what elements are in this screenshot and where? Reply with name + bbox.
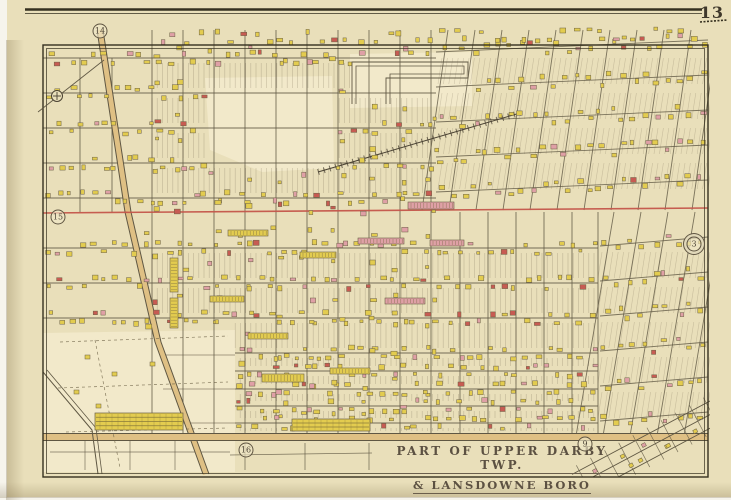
building bbox=[361, 211, 367, 216]
building bbox=[377, 320, 381, 324]
building bbox=[668, 115, 673, 119]
building bbox=[372, 104, 377, 109]
building bbox=[344, 321, 348, 326]
building bbox=[433, 417, 438, 421]
building bbox=[367, 392, 373, 395]
plate-ref-marker: 9 bbox=[578, 437, 593, 452]
building bbox=[179, 96, 183, 101]
building bbox=[547, 38, 552, 42]
building bbox=[339, 355, 345, 358]
building bbox=[534, 322, 540, 325]
building bbox=[565, 189, 570, 193]
building bbox=[556, 373, 559, 378]
building bbox=[565, 313, 569, 317]
building bbox=[549, 313, 552, 317]
building bbox=[273, 410, 279, 413]
building bbox=[136, 52, 141, 57]
building bbox=[278, 181, 281, 184]
building bbox=[54, 62, 60, 66]
building bbox=[340, 91, 346, 94]
building bbox=[480, 418, 486, 422]
building bbox=[678, 381, 684, 386]
building bbox=[678, 139, 683, 144]
building bbox=[677, 337, 681, 340]
building bbox=[246, 203, 252, 208]
building bbox=[639, 387, 644, 390]
building bbox=[237, 406, 242, 410]
building bbox=[536, 401, 539, 405]
building bbox=[57, 121, 61, 126]
building bbox=[154, 207, 159, 212]
building bbox=[237, 384, 243, 389]
building bbox=[487, 79, 491, 83]
building bbox=[123, 132, 129, 136]
building bbox=[371, 234, 377, 237]
building bbox=[532, 188, 536, 192]
building bbox=[577, 356, 583, 359]
building bbox=[104, 167, 109, 170]
building bbox=[640, 37, 644, 41]
building bbox=[370, 349, 375, 353]
building bbox=[534, 364, 538, 368]
building bbox=[509, 193, 514, 196]
building bbox=[576, 321, 582, 325]
building bbox=[476, 121, 479, 125]
building bbox=[181, 122, 187, 126]
building bbox=[549, 347, 553, 350]
building bbox=[394, 293, 398, 297]
building bbox=[590, 313, 595, 317]
building bbox=[537, 276, 541, 281]
building bbox=[154, 55, 160, 58]
building bbox=[613, 38, 619, 41]
building bbox=[511, 374, 516, 377]
building bbox=[144, 279, 149, 282]
building bbox=[331, 279, 336, 282]
building bbox=[128, 155, 132, 160]
building bbox=[162, 96, 167, 101]
building bbox=[310, 298, 315, 303]
building bbox=[643, 183, 648, 188]
open-block bbox=[350, 52, 472, 108]
building bbox=[557, 348, 562, 351]
building bbox=[548, 409, 552, 414]
building bbox=[174, 209, 180, 214]
building bbox=[643, 342, 647, 346]
building bbox=[467, 356, 473, 360]
building bbox=[436, 400, 439, 405]
building bbox=[402, 284, 406, 288]
building bbox=[115, 199, 120, 204]
building bbox=[440, 115, 443, 119]
building bbox=[355, 278, 359, 282]
building bbox=[438, 423, 441, 428]
building bbox=[421, 279, 426, 282]
building bbox=[678, 34, 683, 38]
building bbox=[622, 177, 625, 181]
building bbox=[591, 390, 596, 394]
building bbox=[74, 390, 79, 394]
building bbox=[665, 148, 669, 152]
building bbox=[394, 372, 398, 377]
building bbox=[270, 277, 274, 281]
building bbox=[663, 419, 666, 422]
building bbox=[80, 243, 86, 247]
building bbox=[534, 113, 538, 117]
building bbox=[215, 61, 221, 66]
building bbox=[69, 166, 74, 169]
building bbox=[463, 36, 467, 41]
building bbox=[268, 252, 272, 255]
building bbox=[389, 32, 394, 35]
building bbox=[155, 241, 160, 245]
building bbox=[301, 52, 307, 57]
building bbox=[509, 112, 514, 115]
map-canvas bbox=[0, 0, 731, 500]
building bbox=[370, 260, 375, 265]
building bbox=[60, 320, 65, 324]
building bbox=[593, 242, 597, 245]
building bbox=[516, 148, 520, 152]
building bbox=[404, 319, 408, 324]
building bbox=[332, 319, 336, 322]
building bbox=[601, 83, 604, 87]
building bbox=[535, 39, 540, 43]
building bbox=[402, 394, 407, 397]
building bbox=[111, 61, 114, 65]
building bbox=[491, 400, 494, 405]
building bbox=[687, 140, 692, 144]
building bbox=[369, 316, 374, 320]
building bbox=[257, 372, 261, 377]
building bbox=[489, 347, 493, 350]
building bbox=[567, 275, 572, 280]
building bbox=[383, 409, 387, 414]
building bbox=[351, 129, 357, 133]
building bbox=[463, 194, 469, 198]
building bbox=[479, 31, 483, 34]
building bbox=[392, 377, 397, 380]
building bbox=[353, 165, 357, 169]
building bbox=[540, 74, 544, 79]
building bbox=[95, 122, 99, 125]
building bbox=[687, 76, 693, 80]
building bbox=[426, 51, 429, 55]
building bbox=[57, 278, 62, 281]
building bbox=[172, 201, 177, 204]
building bbox=[237, 425, 242, 428]
building bbox=[153, 310, 159, 314]
building bbox=[85, 355, 90, 359]
building bbox=[625, 378, 630, 383]
building bbox=[589, 278, 594, 282]
building bbox=[228, 251, 231, 256]
building bbox=[629, 280, 633, 285]
building bbox=[150, 362, 155, 366]
building bbox=[292, 408, 296, 412]
building bbox=[278, 202, 282, 207]
building bbox=[149, 158, 155, 162]
building bbox=[314, 193, 320, 197]
building bbox=[437, 381, 443, 385]
building bbox=[540, 145, 546, 149]
building bbox=[526, 366, 529, 369]
building bbox=[486, 114, 490, 119]
building bbox=[208, 261, 212, 265]
building bbox=[328, 391, 333, 396]
building bbox=[370, 147, 376, 152]
building bbox=[569, 416, 575, 420]
building bbox=[135, 88, 140, 91]
building bbox=[477, 318, 480, 323]
building bbox=[646, 141, 652, 145]
building bbox=[577, 373, 582, 377]
building bbox=[277, 38, 283, 42]
building bbox=[597, 109, 600, 113]
rowhouse-strip bbox=[170, 258, 178, 292]
building bbox=[372, 374, 377, 377]
building bbox=[215, 285, 218, 288]
building bbox=[274, 357, 277, 362]
building bbox=[326, 201, 329, 206]
building bbox=[328, 399, 334, 404]
building bbox=[359, 51, 365, 56]
building bbox=[605, 387, 611, 391]
building bbox=[238, 242, 242, 245]
building bbox=[601, 414, 607, 418]
building bbox=[621, 73, 627, 78]
building bbox=[531, 154, 537, 157]
building bbox=[544, 364, 549, 367]
building bbox=[137, 130, 141, 134]
building bbox=[677, 182, 683, 186]
building bbox=[183, 268, 189, 271]
building bbox=[282, 427, 287, 430]
building bbox=[457, 400, 462, 403]
building bbox=[256, 32, 260, 36]
building bbox=[268, 285, 272, 288]
building bbox=[460, 124, 466, 128]
plate-number: 13 bbox=[700, 3, 724, 22]
building bbox=[177, 46, 182, 50]
building bbox=[687, 346, 692, 349]
building bbox=[263, 416, 266, 420]
building bbox=[468, 242, 473, 245]
building bbox=[425, 364, 428, 369]
building bbox=[195, 194, 200, 197]
building bbox=[60, 166, 65, 170]
building bbox=[72, 61, 76, 65]
building bbox=[544, 182, 549, 186]
building bbox=[557, 400, 561, 405]
building bbox=[383, 199, 388, 203]
building bbox=[55, 252, 59, 255]
building bbox=[629, 343, 634, 347]
building bbox=[373, 193, 377, 197]
building bbox=[178, 250, 181, 255]
building bbox=[322, 242, 328, 246]
building bbox=[494, 366, 499, 371]
building bbox=[381, 276, 387, 280]
building bbox=[145, 318, 149, 323]
building bbox=[502, 37, 506, 42]
building bbox=[488, 182, 491, 185]
building bbox=[444, 276, 449, 280]
building bbox=[522, 37, 526, 42]
building bbox=[252, 424, 258, 429]
building bbox=[425, 312, 431, 316]
building bbox=[345, 383, 351, 387]
building bbox=[270, 312, 276, 315]
building bbox=[471, 185, 476, 188]
building bbox=[339, 408, 343, 411]
building bbox=[599, 37, 605, 41]
building bbox=[629, 422, 633, 425]
building bbox=[416, 398, 419, 402]
building bbox=[250, 311, 254, 315]
building bbox=[622, 142, 627, 145]
building bbox=[547, 392, 552, 395]
atlas-page: 13 PART OF UPPER DARBY TWP. & LANSDOWNE … bbox=[0, 0, 731, 500]
building bbox=[299, 311, 304, 314]
building bbox=[156, 60, 161, 64]
building bbox=[339, 60, 344, 64]
building bbox=[546, 252, 551, 255]
building bbox=[190, 128, 195, 133]
building bbox=[643, 279, 647, 284]
building bbox=[433, 298, 437, 302]
building bbox=[170, 33, 175, 37]
building bbox=[215, 29, 219, 34]
building bbox=[80, 318, 85, 323]
building bbox=[127, 278, 132, 282]
open-field bbox=[43, 330, 235, 472]
building bbox=[589, 409, 593, 412]
building bbox=[401, 197, 405, 201]
page-shading-bottom bbox=[0, 482, 731, 498]
building bbox=[372, 155, 378, 159]
building bbox=[429, 123, 433, 127]
building bbox=[349, 408, 354, 411]
building bbox=[359, 40, 365, 45]
building bbox=[698, 175, 701, 180]
building bbox=[517, 407, 521, 410]
building bbox=[501, 427, 505, 430]
building bbox=[153, 169, 157, 173]
building bbox=[433, 117, 436, 120]
building bbox=[628, 239, 632, 242]
building bbox=[310, 384, 315, 389]
building bbox=[415, 381, 418, 385]
building bbox=[258, 392, 262, 397]
building bbox=[239, 361, 245, 366]
building bbox=[481, 366, 484, 370]
building bbox=[282, 250, 287, 253]
building bbox=[325, 356, 331, 360]
building bbox=[247, 398, 250, 403]
building bbox=[439, 185, 445, 189]
building bbox=[357, 392, 361, 396]
building bbox=[517, 111, 523, 115]
building bbox=[272, 53, 277, 57]
building bbox=[397, 164, 403, 167]
building bbox=[199, 30, 204, 35]
building bbox=[542, 416, 548, 419]
building bbox=[81, 190, 85, 194]
building bbox=[111, 166, 116, 170]
building bbox=[169, 130, 175, 134]
building bbox=[526, 278, 532, 282]
building bbox=[175, 113, 179, 116]
building bbox=[82, 165, 85, 170]
building bbox=[216, 230, 221, 233]
building bbox=[443, 251, 448, 254]
building bbox=[455, 29, 461, 33]
building bbox=[578, 110, 583, 113]
building bbox=[283, 59, 287, 63]
building bbox=[342, 173, 346, 178]
building bbox=[426, 234, 430, 238]
building bbox=[401, 363, 406, 367]
building bbox=[360, 320, 363, 323]
building bbox=[112, 275, 117, 279]
building bbox=[413, 372, 416, 375]
building bbox=[382, 423, 386, 428]
building bbox=[571, 243, 575, 248]
building bbox=[505, 155, 511, 159]
building bbox=[403, 191, 407, 194]
building bbox=[581, 382, 586, 387]
rowhouse-strip bbox=[300, 252, 336, 258]
building bbox=[313, 60, 319, 63]
building bbox=[434, 356, 440, 359]
building bbox=[93, 275, 99, 280]
building bbox=[261, 193, 265, 197]
building bbox=[591, 417, 595, 420]
building bbox=[428, 38, 432, 43]
building bbox=[305, 365, 311, 369]
building bbox=[279, 415, 282, 418]
building bbox=[307, 408, 311, 412]
building bbox=[47, 284, 50, 288]
building bbox=[370, 177, 375, 180]
building bbox=[283, 201, 289, 206]
building bbox=[308, 228, 312, 233]
building bbox=[537, 416, 542, 419]
building bbox=[400, 405, 406, 408]
building bbox=[247, 286, 251, 291]
building bbox=[276, 390, 282, 395]
building bbox=[518, 189, 523, 194]
building bbox=[661, 339, 667, 342]
building bbox=[112, 241, 116, 245]
building bbox=[390, 278, 393, 282]
building bbox=[516, 418, 522, 422]
building bbox=[496, 191, 501, 194]
building bbox=[617, 379, 621, 383]
building bbox=[581, 407, 585, 411]
building bbox=[545, 287, 548, 290]
building bbox=[249, 382, 255, 386]
building bbox=[467, 407, 472, 410]
building bbox=[511, 357, 517, 361]
building bbox=[383, 121, 387, 126]
building bbox=[332, 380, 337, 385]
building bbox=[329, 57, 335, 61]
building bbox=[423, 390, 427, 394]
building bbox=[273, 198, 277, 203]
building bbox=[259, 354, 263, 359]
